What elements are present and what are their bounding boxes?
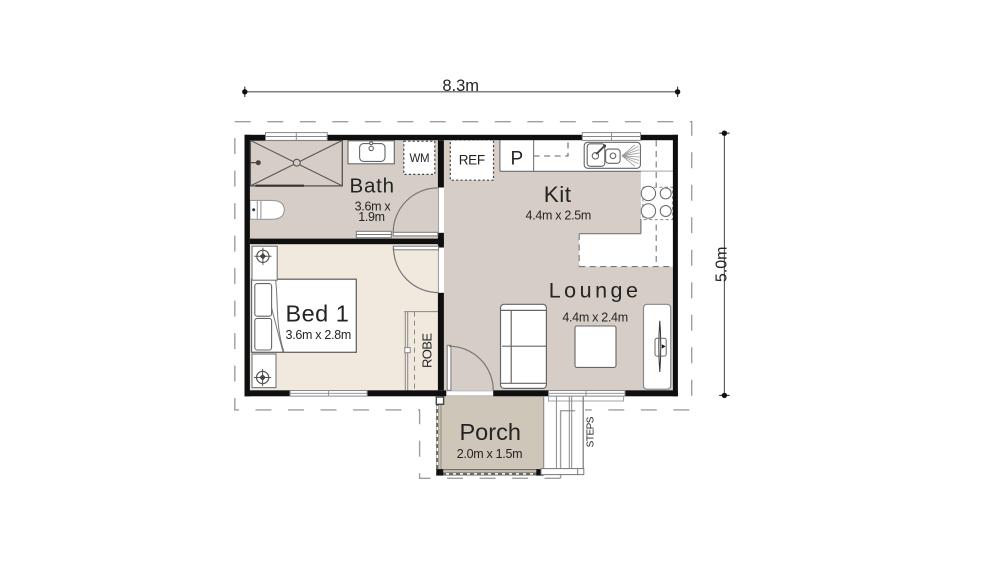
svg-text:WM: WM [409, 153, 429, 165]
svg-text:1.9m: 1.9m [358, 210, 385, 224]
svg-text:Bed 1: Bed 1 [285, 301, 349, 327]
svg-text:Lounge: Lounge [549, 278, 642, 302]
svg-text:REF: REF [459, 153, 485, 168]
svg-text:P: P [510, 149, 523, 170]
svg-text:STEPS: STEPS [586, 416, 597, 447]
svg-text:2.0m x 1.5m: 2.0m x 1.5m [457, 447, 522, 461]
svg-text:Porch: Porch [460, 419, 521, 445]
svg-text:Bath: Bath [350, 175, 395, 198]
svg-text:Kit: Kit [544, 182, 572, 207]
svg-text:4.4m x 2.4m: 4.4m x 2.4m [562, 311, 627, 325]
svg-text:ROBE: ROBE [420, 333, 435, 368]
svg-text:4.4m x 2.5m: 4.4m x 2.5m [526, 209, 591, 223]
svg-text:5.0m: 5.0m [714, 247, 731, 283]
svg-text:8.3m: 8.3m [442, 77, 479, 95]
svg-text:3.6m x 2.8m: 3.6m x 2.8m [286, 328, 351, 342]
